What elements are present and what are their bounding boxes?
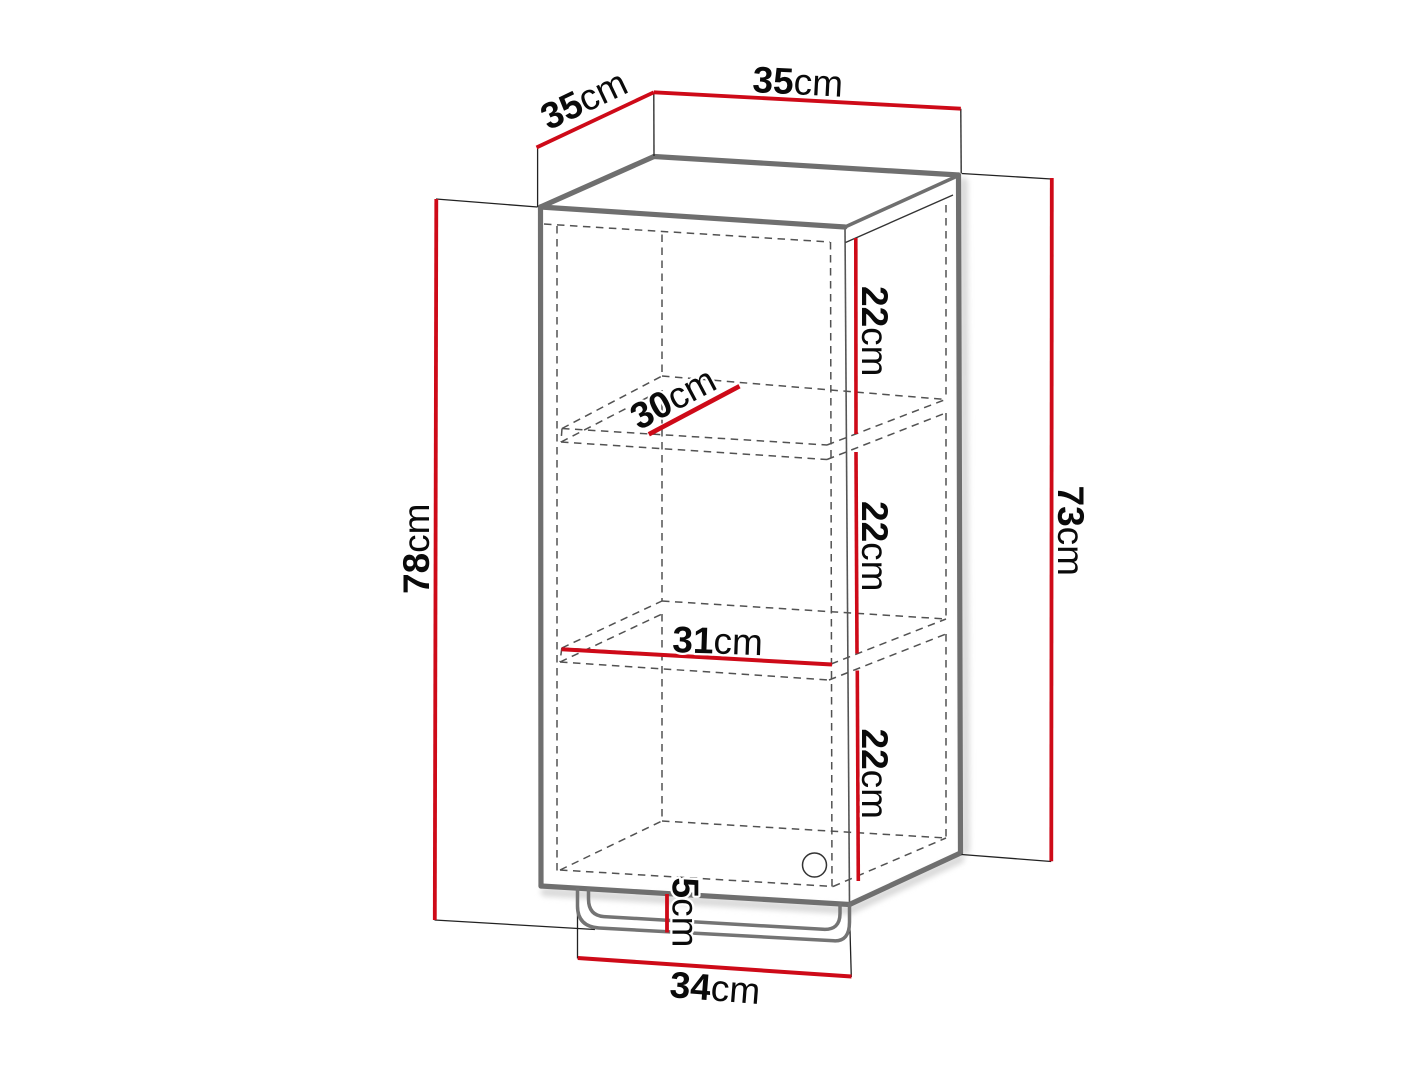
svg-text:22cm: 22cm bbox=[854, 286, 895, 376]
svg-text:73cm: 73cm bbox=[1050, 486, 1091, 576]
svg-text:78cm: 78cm bbox=[396, 504, 437, 594]
svg-text:22cm: 22cm bbox=[854, 501, 895, 591]
svg-text:22cm: 22cm bbox=[854, 729, 895, 819]
svg-text:31cm: 31cm bbox=[672, 619, 764, 663]
svg-text:34cm: 34cm bbox=[668, 964, 761, 1012]
svg-text:35cm: 35cm bbox=[752, 59, 845, 105]
svg-text:5cm: 5cm bbox=[665, 878, 706, 948]
